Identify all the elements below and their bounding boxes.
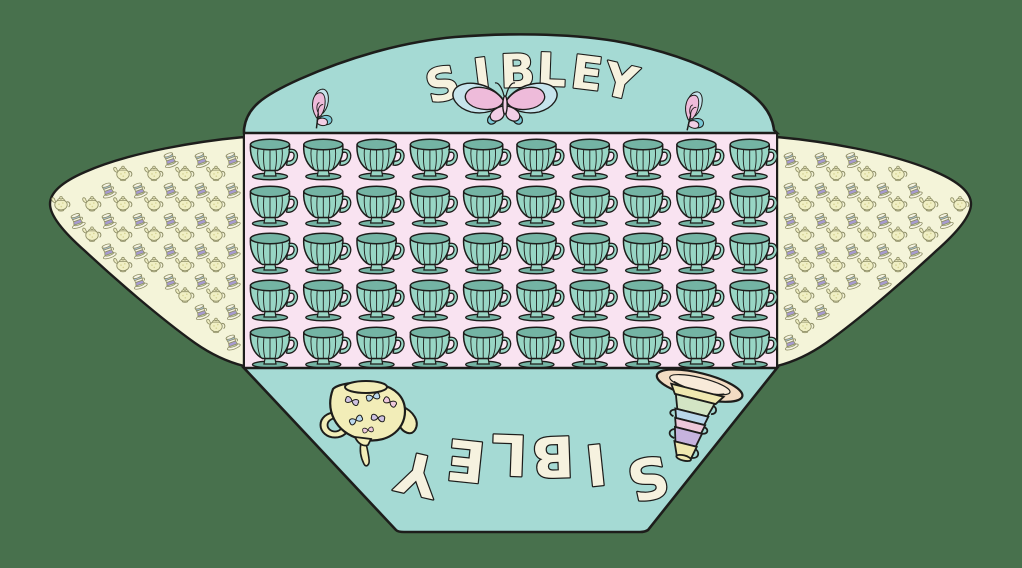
envelope-template-canvas: SIBLEY: [0, 0, 1022, 568]
title-letter: L: [490, 420, 528, 486]
envelope-template-artwork: SIBLEY: [0, 0, 1022, 568]
title-letter: E: [444, 425, 489, 494]
title-letter: B: [530, 422, 575, 488]
